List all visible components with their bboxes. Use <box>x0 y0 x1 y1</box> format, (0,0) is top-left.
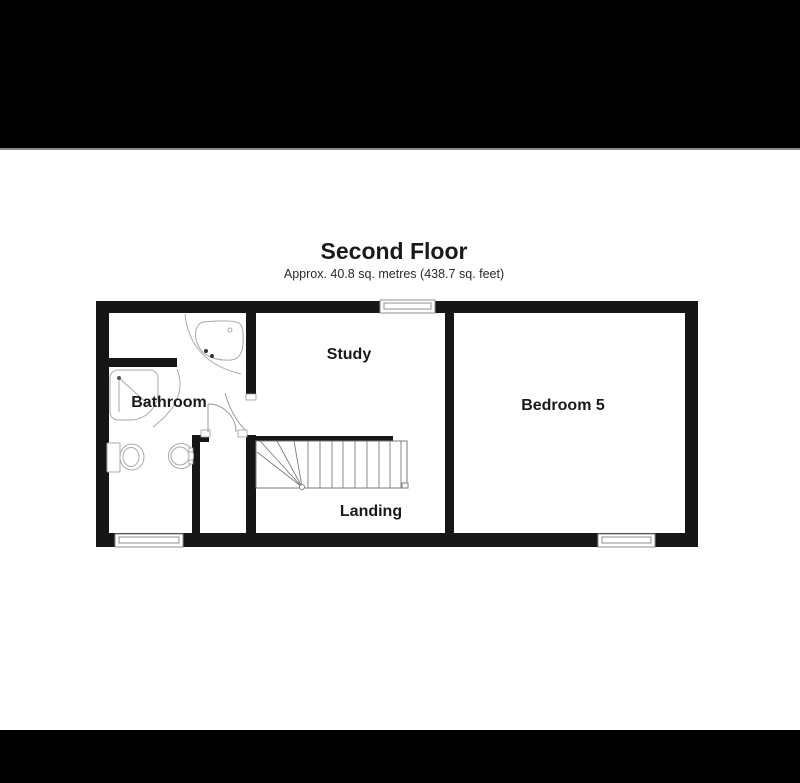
sink-icon <box>169 444 194 469</box>
room-label-landing: Landing <box>340 503 402 520</box>
room-label-bedroom5: Bedroom 5 <box>521 397 605 414</box>
wall <box>96 301 109 547</box>
staircase-icon <box>256 441 408 490</box>
floor-plan-page: Second Floor Approx. 40.8 sq. metres (43… <box>0 0 800 783</box>
door-jamb <box>246 394 256 400</box>
room-label-study: Study <box>327 346 372 363</box>
wall <box>445 313 454 533</box>
letterbox-bottom <box>0 730 800 783</box>
window-icon <box>380 300 435 313</box>
bathroom-door <box>201 393 256 437</box>
plan-title: Second Floor <box>321 238 468 264</box>
door-jamb <box>201 430 210 437</box>
door-jamb <box>238 430 247 437</box>
window-icon <box>598 534 655 547</box>
wall <box>246 435 256 533</box>
toilet-icon <box>107 443 144 472</box>
letterbox-divider <box>0 148 800 150</box>
wall <box>685 301 698 547</box>
letterbox-top <box>0 0 800 148</box>
window-icon <box>115 534 183 547</box>
bath-icon <box>185 314 243 374</box>
wall <box>246 313 256 395</box>
plan-subtitle: Approx. 40.8 sq. metres (438.7 sq. feet) <box>284 267 504 281</box>
floor-plan-image: Second Floor Approx. 40.8 sq. metres (43… <box>0 0 800 783</box>
wall <box>109 358 177 367</box>
room-label-bathroom: Bathroom <box>131 394 207 411</box>
